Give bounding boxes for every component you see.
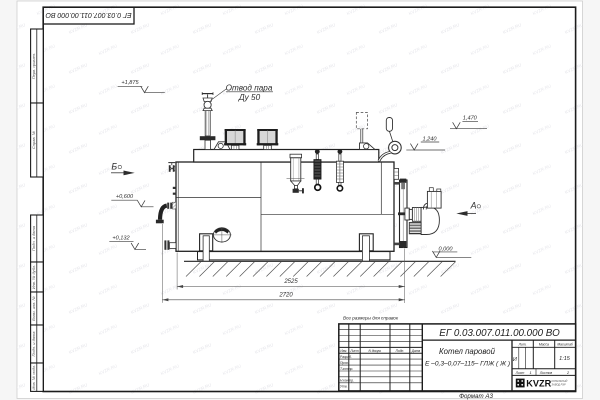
svg-text:Формат А3: Формат А3 [459, 393, 493, 400]
svg-text:KVZR: KVZR [526, 379, 551, 389]
svg-text:+1,875: +1,875 [121, 80, 139, 86]
svg-text:1: 1 [529, 371, 531, 375]
svg-text:Инв. № дубл.: Инв. № дубл. [31, 265, 36, 290]
svg-text:Лист: Лист [515, 371, 525, 375]
svg-text:Е –0,3–0,07–115– ГЛЖ ( Ж ): Е –0,3–0,07–115– ГЛЖ ( Ж ) [425, 361, 510, 368]
svg-text:Н.контр.: Н.контр. [340, 379, 354, 383]
svg-text:И: И [513, 357, 517, 363]
svg-text:1,240: 1,240 [423, 136, 438, 142]
svg-text:Масштаб: Масштаб [557, 342, 573, 346]
svg-text:Масса: Масса [539, 342, 549, 346]
svg-text:Б: Б [111, 162, 117, 172]
svg-text:Взам. инв. №: Взам. инв. № [31, 295, 36, 320]
svg-text:А: А [470, 201, 477, 211]
svg-text:Отвод пара: Отвод пара [226, 83, 273, 92]
svg-text:Листов: Листов [539, 371, 553, 375]
svg-text:Утв.: Утв. [340, 385, 348, 389]
svg-text:Разраб.: Разраб. [340, 355, 352, 359]
svg-text:Дата: Дата [411, 349, 421, 353]
svg-text:КОТЕЛЬНЫЙ: КОТЕЛЬНЫЙ [552, 380, 568, 383]
svg-text:ЕГ 0.03.007.011.00.000 ВО: ЕГ 0.03.007.011.00.000 ВО [439, 328, 560, 339]
svg-text:Справ. №: Справ. № [31, 130, 36, 149]
svg-text:Подп.: Подп. [396, 349, 405, 353]
svg-text:1,470: 1,470 [463, 116, 478, 122]
svg-text:Все размеры для справок: Все размеры для справок [343, 316, 399, 321]
svg-text:+0,132: +0,132 [112, 236, 130, 242]
svg-text:2525: 2525 [283, 279, 298, 285]
svg-text:N докум.: N докум. [369, 349, 382, 353]
svg-text:Подп. и дата: Подп. и дата [31, 331, 36, 357]
svg-text:Ду 50: Ду 50 [238, 93, 261, 102]
svg-text:Лист: Лист [349, 349, 359, 353]
svg-text:Т.контр.: Т.контр. [340, 367, 353, 371]
svg-text:ЕГ 0.03.007.011.00.000 ВО: ЕГ 0.03.007.011.00.000 ВО [45, 11, 132, 18]
svg-text:Котел паровой: Котел паровой [439, 347, 496, 356]
svg-text:Подп. и дата: Подп. и дата [31, 225, 36, 251]
svg-text:Инв. № подл.: Инв. № подл. [31, 365, 36, 390]
svg-text:1:15: 1:15 [559, 356, 571, 362]
svg-text:Перв. примен.: Перв. примен. [31, 53, 36, 80]
svg-text:2720: 2720 [278, 293, 293, 299]
svg-text:Пров.: Пров. [340, 361, 349, 365]
svg-text:ЗАВОД РЭР: ЗАВОД РЭР [552, 383, 567, 386]
svg-text:Изм.: Изм. [340, 349, 347, 353]
svg-text:+0,600: +0,600 [116, 194, 134, 200]
svg-text:Лит.: Лит. [518, 342, 527, 346]
